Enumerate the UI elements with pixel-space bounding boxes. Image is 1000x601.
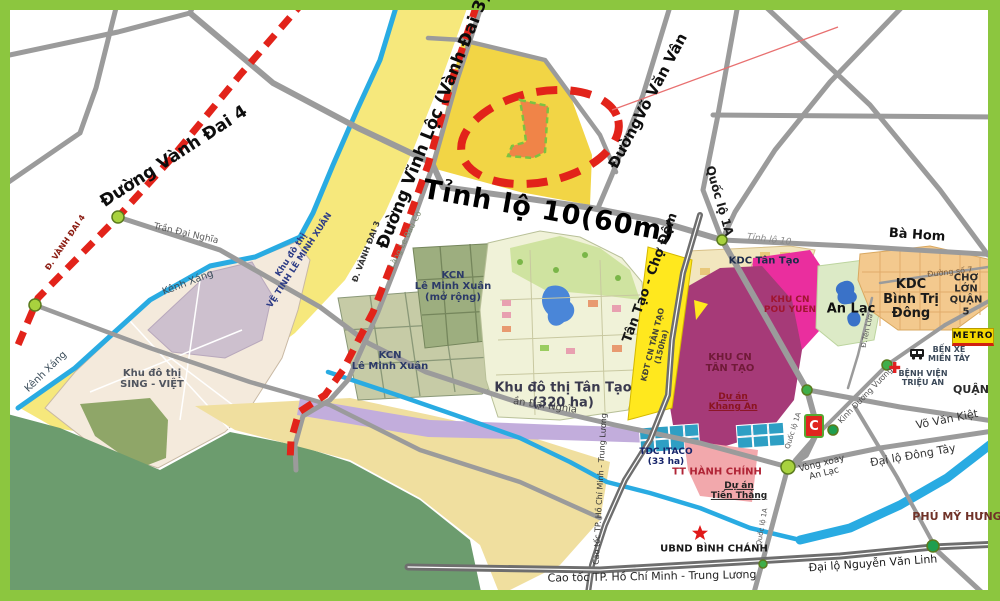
- junction-node: [29, 299, 41, 311]
- metro-badge: METRO: [952, 328, 994, 346]
- junction-node: [802, 385, 812, 395]
- junction-node: [828, 425, 838, 435]
- big-c-badge: C: [804, 414, 824, 438]
- road-ne-2: [767, 8, 988, 255]
- road-ql1a-south: [752, 467, 788, 600]
- an-lac-roundabout-node: [781, 460, 795, 474]
- map-canvas: [0, 0, 1000, 601]
- junction-node: [759, 560, 767, 568]
- river: [800, 437, 1000, 540]
- area-kcn-tan-tao: [668, 266, 802, 449]
- star-icon: [692, 525, 708, 540]
- junction-node: [927, 540, 939, 552]
- callout-line: [612, 27, 838, 110]
- junction-node: [717, 235, 727, 245]
- bus-station-icon: [910, 349, 924, 360]
- road-ql1a-north: [703, 4, 738, 240]
- junction-node: [112, 211, 124, 223]
- road-ne-1: [722, 4, 905, 240]
- planning-map: Đường Vành Đai 4 Đ. VÀNH ĐAI 4 Đường Vĩn…: [0, 0, 1000, 601]
- road-top-left-2: [0, 0, 118, 188]
- road-horizontal-north: [713, 115, 1000, 117]
